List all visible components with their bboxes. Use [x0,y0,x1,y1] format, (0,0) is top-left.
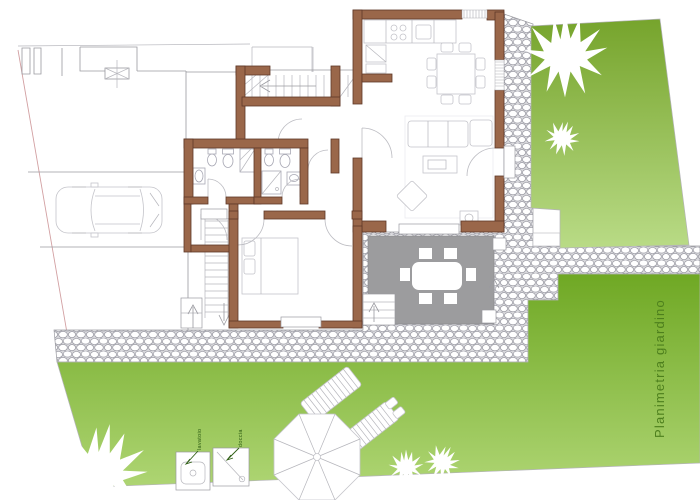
planter [493,238,506,250]
down-arrow-icon [219,303,229,325]
door-sill [201,209,227,219]
dining-table [427,43,485,104]
sink [193,168,205,184]
outdoor-shower [213,448,249,486]
door-sill [399,224,459,234]
outdoor-sink [176,452,210,490]
car [56,183,162,237]
plan-title: Planimetria giardino [652,299,667,438]
shower [262,171,281,194]
shower [240,149,255,172]
door-sill [504,146,515,178]
floor-plan-page: lavatoio doccia [0,0,700,500]
patio-steps [363,294,395,325]
toilet [223,149,234,168]
stair-direction-arrow-icon [260,80,316,92]
planter [482,310,496,323]
window [495,60,504,90]
bathroom-1 [193,149,255,197]
bidet [208,149,217,166]
bed [242,238,298,294]
fixture-label-right: doccia [238,429,244,447]
window-sill [281,317,321,327]
umbrella [274,414,360,500]
bidet [265,149,274,166]
walkway-step [533,233,560,246]
patio [363,236,506,325]
floor-plan-svg: lavatoio doccia [0,0,700,500]
fixture-label-left: lavatoio [197,429,203,450]
bathroom-2 [262,149,301,197]
boundary-line-top [18,44,250,46]
toilet [280,149,291,168]
driveway-gate [105,60,129,88]
window [462,10,487,18]
sofa-set [396,116,493,225]
